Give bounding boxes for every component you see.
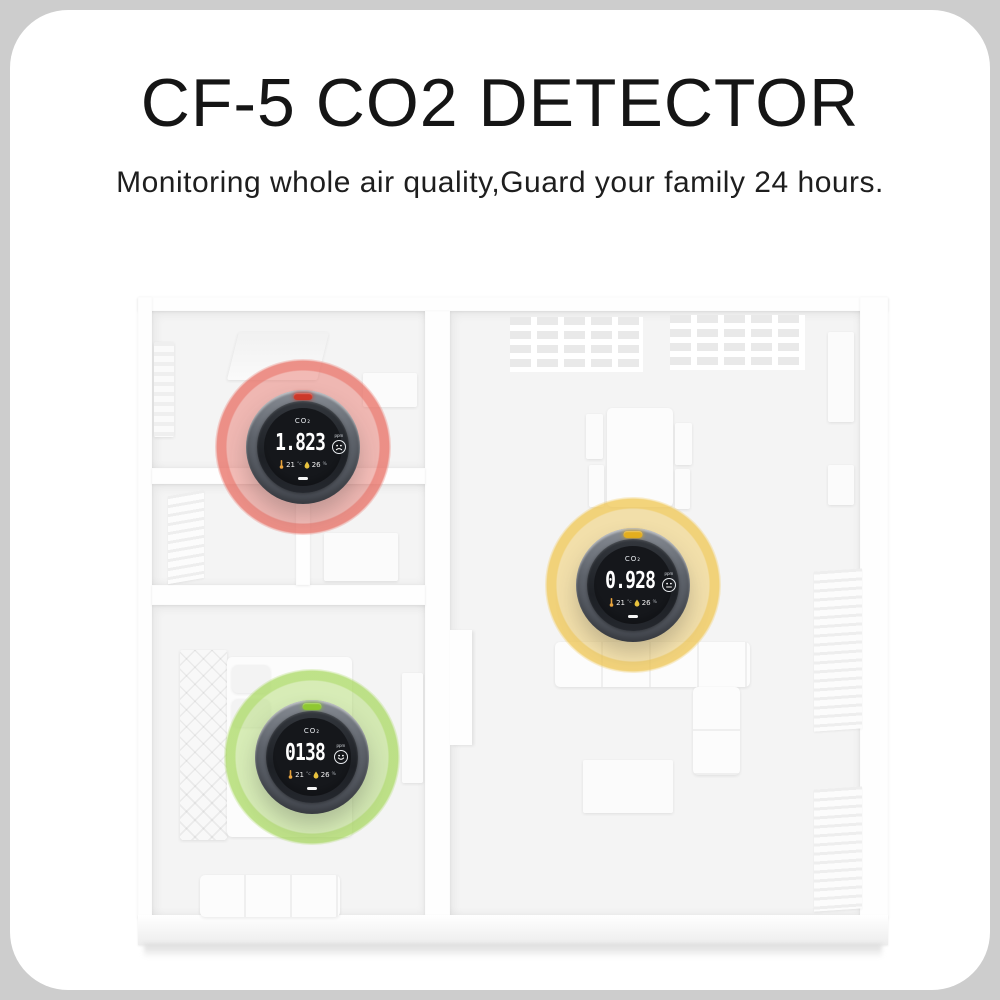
env-row: 21 °c 26 %: [594, 598, 672, 607]
sad-face-icon: [332, 440, 346, 454]
humidity-unit: %: [653, 600, 657, 605]
detector-bedroom: CO₂ 0138 ppm: [255, 700, 369, 814]
neutral-face-icon: [662, 578, 676, 592]
staircase-right-2: [814, 786, 862, 911]
page-title: CF-5 CO2 DETECTOR: [10, 64, 990, 142]
device-body: CO₂ 0.928 ppm: [576, 528, 690, 642]
dining-chair-3: [589, 465, 604, 507]
temp-value: 21: [286, 461, 295, 469]
reading-side: ppm: [333, 743, 348, 764]
humidity-value: 26: [321, 771, 330, 779]
window-vent-1: [510, 317, 643, 372]
temp-value: 21: [295, 771, 304, 779]
humidity-unit: %: [323, 462, 327, 467]
temp-unit: °c: [627, 600, 632, 605]
thermometer-icon: [609, 598, 614, 607]
staircase-small-room: [168, 490, 204, 584]
device-body: CO₂ 0138 ppm: [255, 700, 369, 814]
wall-top: [138, 297, 888, 311]
temp-value: 21: [616, 599, 625, 607]
staircase-right-1: [814, 568, 862, 731]
screen-dash: [628, 615, 638, 618]
bedroom-closet: [402, 673, 423, 783]
co2-reading: 1.823: [275, 430, 325, 456]
reading-row: 0.928 ppm: [598, 567, 669, 595]
dining-table: [607, 408, 673, 507]
floor-plan-shadow: [144, 944, 882, 958]
reading-side: ppm: [662, 571, 676, 592]
humidity-value: 26: [312, 461, 321, 469]
door-leaf: [450, 630, 472, 745]
env-row: 21 °c 26 %: [264, 460, 342, 469]
wardrobe-right-1: [828, 332, 854, 422]
reading-side: ppm: [332, 433, 346, 454]
wardrobe-right-2: [828, 465, 854, 505]
device-body: CO₂ 1.823 ppm: [246, 390, 360, 504]
temp-unit: °c: [297, 462, 302, 467]
unit-label: ppm: [335, 433, 344, 438]
page-subtitle: Monitoring whole air quality,Guard your …: [10, 166, 990, 200]
happy-face-icon: [334, 750, 348, 764]
temp-unit: °c: [306, 772, 311, 777]
dining-chair-4: [675, 469, 690, 509]
unit-label: ppm: [336, 743, 345, 748]
bedroom-bench: [200, 875, 340, 917]
bed-headboard: [180, 650, 227, 840]
wall-divider-vertical: [425, 311, 450, 915]
device-screen: CO₂ 0138 ppm: [273, 718, 351, 796]
dining-chair-2: [675, 423, 692, 465]
humidity-drop-icon: [304, 461, 310, 469]
detector-top-left-room: CO₂ 1.823 ppm: [246, 390, 360, 504]
sofa-corner: [693, 687, 740, 775]
env-row: 21 °c 26 %: [273, 770, 351, 779]
screen-dash: [298, 477, 308, 480]
humidity-unit: %: [332, 772, 336, 777]
wall-left: [138, 297, 152, 918]
thermometer-icon: [288, 770, 293, 779]
humidity-drop-icon: [313, 771, 319, 779]
wall-right: [860, 297, 888, 918]
status-led-green: [303, 703, 322, 710]
reading-row: 0138 ppm: [277, 739, 348, 767]
reading-row: 1.823 ppm: [268, 429, 339, 457]
gas-label: CO₂: [594, 555, 672, 563]
dining-chair-1: [586, 414, 603, 459]
unit-label: ppm: [665, 571, 674, 576]
cabinet-mid-room: [324, 533, 398, 581]
window-vent-2: [670, 315, 805, 370]
coffee-table: [583, 760, 673, 813]
product-card: CF-5 CO2 DETECTOR Monitoring whole air q…: [10, 10, 990, 990]
wall-bottom: [138, 915, 888, 945]
status-led-yellow: [624, 531, 643, 538]
humidity-value: 26: [642, 599, 651, 607]
screen-dash: [307, 787, 317, 790]
wall-left-horizontal-2: [152, 585, 425, 605]
humidity-drop-icon: [634, 599, 640, 607]
co2-reading: 0138: [283, 740, 327, 766]
gas-label: CO₂: [273, 727, 351, 735]
shelf-left: [154, 342, 174, 437]
device-screen: CO₂ 1.823 ppm: [264, 408, 342, 486]
gas-label: CO₂: [264, 417, 342, 425]
device-screen: CO₂ 0.928 ppm: [594, 546, 672, 624]
status-led-red: [294, 393, 313, 400]
co2-reading: 0.928: [605, 568, 655, 594]
detector-living-room: CO₂ 0.928 ppm: [576, 528, 690, 642]
thermometer-icon: [279, 460, 284, 469]
